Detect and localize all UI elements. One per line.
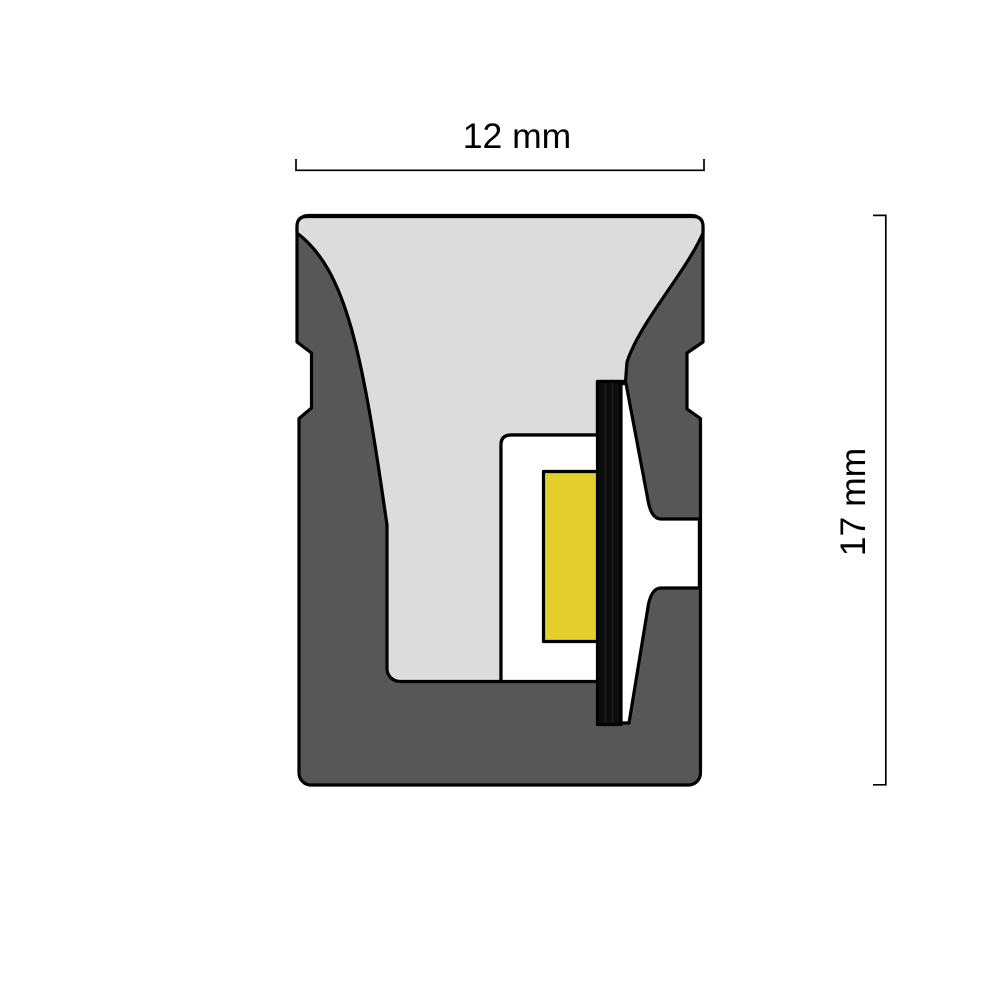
svg-text:12 mm: 12 mm <box>463 116 572 156</box>
svg-text:17 mm: 17 mm <box>833 448 873 557</box>
